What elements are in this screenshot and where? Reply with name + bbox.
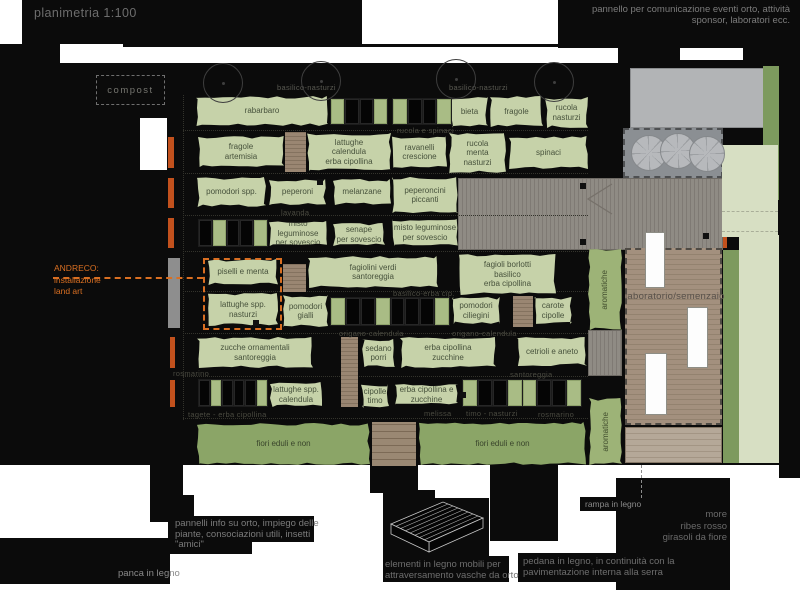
planter-cell-empty [408, 99, 422, 124]
planter-cell-planted [508, 380, 522, 406]
bed-label: ravanelli crescione [402, 143, 436, 162]
bed-senape-per-sovescio: senape per sovescio [333, 223, 385, 246]
planter-cell-empty [346, 298, 360, 325]
wood-walkway [513, 296, 533, 327]
wood-ramp [625, 427, 722, 463]
deck-guide-dash [641, 460, 642, 498]
planter-cell-empty [199, 220, 212, 246]
row-end-marker [170, 380, 175, 407]
right-edge-band [779, 0, 800, 478]
paper-notch-2 [680, 48, 743, 60]
bed-label: peperoni [282, 187, 313, 197]
bed-sedano-porri: sedano porri [362, 339, 395, 367]
paper-notch-3 [140, 118, 167, 170]
tree-circle [301, 61, 341, 101]
companion-label-origano-calendula: origano-calendula [452, 329, 517, 338]
bed-erba-cipollina-e-zucchine: erba cipollina e zucchine [395, 384, 458, 405]
planter-cell-empty [199, 380, 210, 406]
bed-label: carote cipolle [542, 301, 565, 320]
companion-label-basilico-erba-cip: basilico-erba cip. [393, 289, 455, 298]
hedge-east [723, 250, 739, 463]
bed-aromatiche: aromatiche [589, 398, 622, 465]
bed-label: lattughe spp. calendula [273, 385, 319, 404]
companion-label-tagete-erba-cipollina: tagete - erba cipollina [188, 410, 267, 419]
work-table [645, 353, 667, 415]
compost-bin: compost [96, 75, 165, 105]
row-end-marker [168, 178, 174, 208]
bed-label: melanzane [342, 187, 381, 197]
companion-label-santoreggia: santoreggia [510, 370, 553, 379]
bed-label: aromatiche [601, 412, 611, 452]
bed-fagiolini-verdi-santoreggia: fagiolini verdi santoreggia [308, 256, 438, 288]
planter-cell-empty [234, 380, 245, 406]
tree-circle [534, 62, 574, 102]
note-pannelli: pannelli info su orto, impiego delle pia… [175, 519, 319, 551]
paper-notch-1 [558, 48, 618, 63]
planter-cell-empty [405, 298, 419, 325]
bed-label: senape per sovescio [337, 225, 382, 244]
bed-label: pomodori spp. [206, 187, 257, 197]
bed-label: fiori eduli e non [475, 439, 529, 449]
planter-row [330, 297, 450, 326]
planter-cell-planted [331, 298, 345, 325]
bed-pomodori-gialli: pomodori gialli [283, 295, 328, 327]
bed-label: spinaci [536, 148, 561, 158]
bed-label: rucola menta nasturzi [463, 139, 491, 168]
post-marker [703, 233, 709, 239]
bed-rucola-menta-nasturzi: rucola menta nasturzi [449, 133, 506, 173]
bed-peperoncini-piccanti: peperoncini piccanti [392, 177, 458, 213]
companion-label-rosmarino: rosmarino [538, 410, 574, 419]
planter-cell-planted [376, 298, 390, 325]
row-guide-line [183, 173, 588, 174]
bed-label: erba cipollina e zucchine [400, 385, 454, 404]
bed-label: erba cipollina zucchine [424, 343, 471, 362]
bed-label: fragole [504, 107, 528, 117]
wood-walkway [372, 422, 416, 466]
planter-cell-empty [493, 380, 507, 406]
row-end-marker [168, 137, 174, 168]
planter-row [330, 98, 388, 125]
bed-fragole: fragole [490, 96, 543, 127]
bed-label: aromatiche [600, 270, 610, 310]
bed-lattughe-spp-calendula: lattughe spp. calendula [270, 382, 322, 407]
bed-label: fagiolini verdi santoreggia [350, 263, 397, 282]
wood-pallet-drawing [383, 498, 489, 558]
bed-label: cetrioli e aneto [526, 347, 578, 357]
planter-cell-empty [361, 298, 375, 325]
bed-label: rabarbaro [245, 106, 280, 116]
bed-fragole-artemisia: fragole artemisia [198, 136, 284, 167]
row-end-marker [170, 337, 175, 368]
top-right-note: pannello per comunicazione eventi orto, … [510, 4, 790, 26]
planter-cell-planted [331, 99, 344, 124]
bed-label: lattughe calendula erba cipollina [325, 138, 372, 167]
bed-label: pomodori gialli [289, 302, 322, 321]
planter-cell-planted [523, 380, 537, 406]
tree-circle [203, 63, 243, 103]
planter-cell-planted [437, 99, 451, 124]
bed-label: cipolle timo [364, 387, 387, 406]
planter-cell-planted [254, 220, 267, 246]
planter-cell-empty [552, 380, 566, 406]
bed-zucche-ornamentali-santoreggia: zucche ornamentali santoreggia [197, 337, 313, 368]
note-pedana: pedana in legno, in continuità con la pa… [523, 557, 675, 578]
wall-bar [168, 258, 180, 328]
tree-center-dot [320, 80, 323, 83]
bed-carote-cipolle: carote cipolle [534, 297, 572, 324]
tree-canopy [689, 136, 725, 172]
bed-misto-leguminose-per-sovescio: misto leguminose per sovescio [269, 221, 327, 246]
bed-pomodori-ciliegini: pomodori ciliegini [452, 297, 500, 324]
row-guide-line [183, 130, 588, 131]
planter-cell-empty [360, 99, 373, 124]
companion-label-rosmarino: rosmarino [173, 369, 209, 378]
wood-walkway [341, 337, 358, 407]
bed-melanzane: melanzane [333, 179, 391, 205]
plan-title: planimetria 1:100 [34, 6, 137, 20]
planter-cell-planted [374, 99, 387, 124]
post-marker [317, 179, 323, 185]
planter-cell-empty [222, 380, 233, 406]
planter-cell-planted [257, 380, 268, 406]
tree-center-dot [553, 81, 556, 84]
laboratorio-label: laboratorio/semenzaio [625, 291, 722, 302]
bed-lattughe-calendula-erba-cipollina: lattughe calendula erba cipollina [307, 133, 391, 171]
tree-center-dot [455, 78, 458, 81]
bed-label: misto leguminose per sovescio [269, 219, 327, 248]
bed-label: misto leguminose per sovescio [394, 223, 456, 242]
note-rampa: rampa in legno [585, 499, 641, 510]
bed-erba-cipollina-zucchine: erba cipollina zucchine [400, 337, 496, 368]
planter-cell-empty [227, 220, 240, 246]
work-table [687, 307, 708, 368]
bed-label: sedano porri [365, 344, 391, 363]
wood-walkway [285, 132, 306, 172]
note-elementi: elementi in legno mobili per attraversam… [385, 560, 519, 581]
planter-cell-planted [393, 99, 407, 124]
andreco-highlight-rect [203, 258, 282, 330]
bed-ravanelli-crescione: ravanelli crescione [392, 136, 447, 168]
top-edge-line [123, 44, 569, 47]
planter-cell-empty [423, 99, 437, 124]
companion-label-origano-calendula: origano-calendula [339, 329, 404, 338]
planter-cell-planted [213, 220, 226, 246]
bed-label: rucola nasturzi [552, 103, 580, 122]
island-pedana-col [490, 465, 558, 541]
companion-label-rucola-e-spinaci: rucola e spinaci [397, 126, 454, 135]
bed-cetrioli-e-aneto: cetrioli e aneto [517, 337, 587, 366]
companion-label-timo-nasturzi: timo - nasturzi [466, 409, 518, 418]
planter-cell-empty [345, 99, 358, 124]
bed-misto-leguminose-per-sovescio: misto leguminose per sovescio [392, 219, 458, 246]
companion-label-melissa: melissa [424, 409, 452, 418]
row-guide-line [183, 251, 588, 252]
deck-arrow-icon [584, 182, 616, 216]
bed-label: zucche ornamentali santoreggia [220, 343, 289, 362]
top-left-stub [0, 44, 60, 63]
planter-cell-planted [211, 380, 222, 406]
lawn-east [722, 145, 778, 237]
note-panca: panca in legno [118, 569, 180, 580]
planter-row [462, 379, 582, 407]
planter-cell-empty [420, 298, 434, 325]
planter-cell-empty [478, 380, 492, 406]
planter-row [198, 219, 268, 247]
bed-pomodori-spp: pomodori spp. [197, 177, 266, 207]
tree-circle [436, 59, 476, 99]
companion-label-lavanda: lavanda [281, 208, 309, 217]
garden-plan-canvas: planimetria 1:100 pannello per comunicaz… [0, 0, 800, 600]
row-end-marker [168, 218, 174, 248]
bed-spinaci: spinaci [509, 136, 588, 169]
planter-cell-planted [567, 380, 581, 406]
bed-label: pomodori ciliegini [459, 301, 492, 320]
planter-cell-planted [435, 298, 449, 325]
bed-fagioli-borlotti-basilico-erba-cipollina: fagioli borlotti basilico erba cipollina [459, 254, 556, 295]
wood-walkway [283, 264, 306, 292]
post-marker [460, 392, 466, 398]
bed-label: fagioli borlotti basilico erba cipollina [484, 260, 531, 289]
andreco-note: ANDRECO: installazione land art [54, 263, 101, 298]
bed-label: fragole artemisia [225, 142, 257, 161]
tree-center-dot [222, 82, 225, 85]
compost-label: compost [107, 85, 153, 96]
row-guide-line [183, 215, 588, 216]
bed-bieta: bieta [451, 97, 488, 127]
work-table [645, 232, 665, 288]
bed-cipolle-timo: cipolle timo [361, 384, 389, 408]
lawn-dash-1 [722, 211, 778, 212]
post-marker [580, 239, 586, 245]
planter-row [198, 379, 268, 407]
terrace-slab [630, 68, 766, 128]
planter-cell-empty [240, 220, 253, 246]
bed-label: peperoncini piccanti [404, 186, 445, 205]
bed-aromatiche: aromatiche [588, 249, 622, 330]
lawn-southeast [739, 235, 779, 463]
planter-cell-empty [537, 380, 551, 406]
planter-row [392, 98, 452, 125]
bed-label: fiori eduli e non [256, 439, 310, 449]
bed-fiori-eduli-e-non: fiori eduli e non [419, 422, 586, 465]
bed-label: bieta [461, 107, 478, 117]
bed-fiori-eduli-e-non: fiori eduli e non [197, 423, 370, 465]
lawn-dash-2 [722, 231, 778, 232]
island-elementi-col [370, 465, 418, 493]
planter-cell-empty [391, 298, 405, 325]
wood-deck-south [588, 330, 622, 376]
planter-cell-empty [245, 380, 256, 406]
note-frutti: more ribes rosso girasoli da fiore [627, 509, 727, 544]
